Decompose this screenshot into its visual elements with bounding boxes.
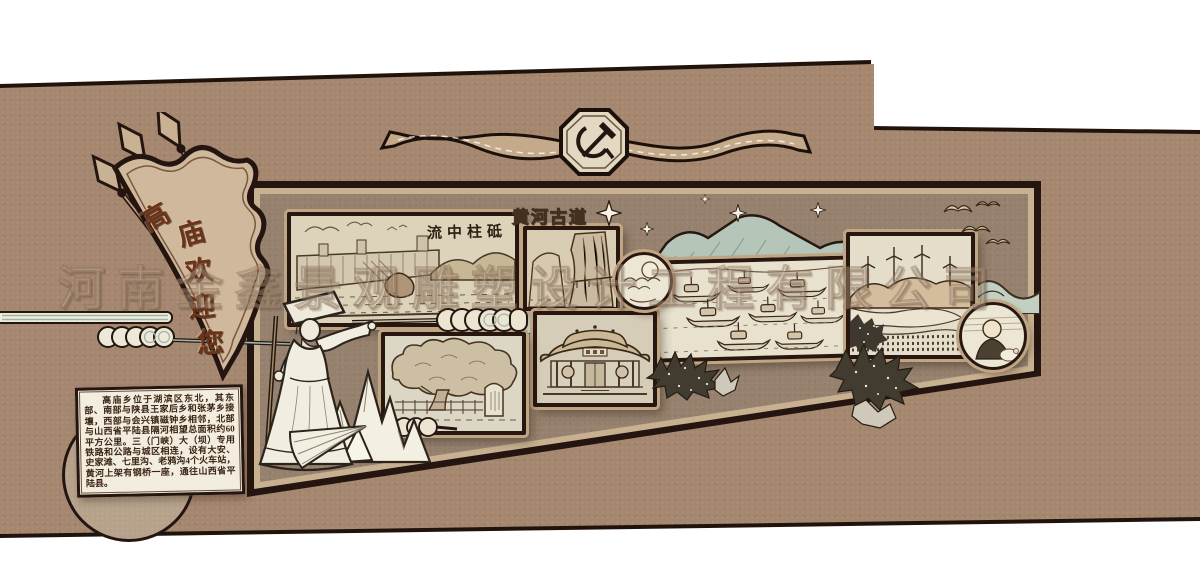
foliage-cluster-left [645,340,740,402]
flag-char-5: 您 [196,321,224,361]
panel-plank-road [523,226,620,311]
cultural-wall-design-canvas: 流中柱砥 黄河古道 [0,0,1200,567]
folding-fan-decor [278,418,373,470]
foliage-cluster-right [826,330,934,430]
top-banner [378,106,814,178]
sun-clouds-sketch [618,255,670,307]
dam-caption: 流中柱砥 [427,220,508,243]
cliff-sketch [527,230,616,307]
star-icon [596,200,622,226]
intro-text-box: 高庙乡位于湖滨区东北，其东部、南部与陕县王家后乡和张茅乡接壤，西部与会兴镇磁钟乡… [75,384,245,497]
temple-sketch [537,315,653,403]
flag-char-4: 迎 [186,284,216,325]
welcome-flag: 高 庙 欢 迎 您 [85,112,290,407]
plank-road-label: 黄河古道 [512,203,588,228]
person-medallion [959,302,1027,370]
star-icon [700,194,710,204]
intro-text: 高庙乡位于湖滨区东北，其东部、南部与陕县王家后乡和张茅乡接壤，西部与会兴镇磁钟乡… [84,392,236,489]
star-icon [729,204,747,222]
sun-clouds-medallion [615,252,673,310]
star-icon [640,222,654,236]
panel-temple [533,311,657,407]
birds-icon [938,198,1016,256]
ribbon-banner [378,106,814,178]
star-icon [810,202,826,218]
person-sketch [962,305,1024,367]
